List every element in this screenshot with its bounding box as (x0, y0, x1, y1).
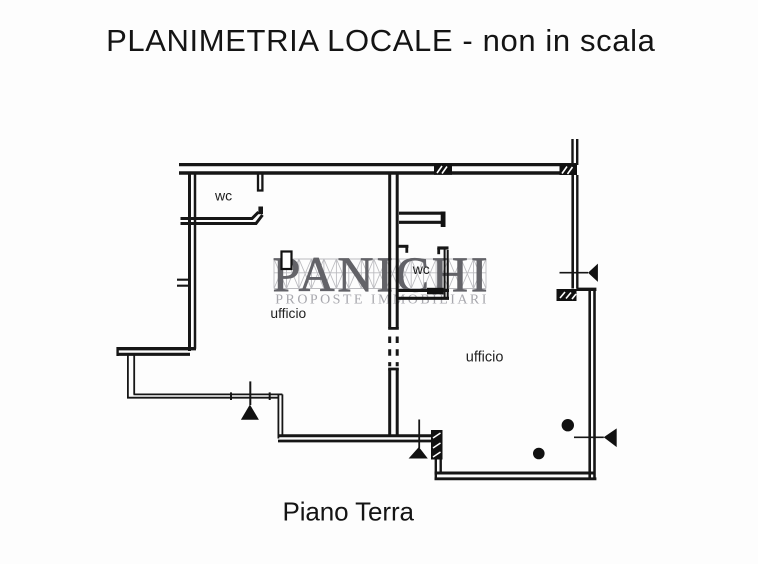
svg-text:wc: wc (412, 261, 430, 277)
svg-text:PROPOSTE IMMOBILIARI: PROPOSTE IMMOBILIARI (275, 292, 489, 307)
svg-text:PLANIMETRIA LOCALE - non in sc: PLANIMETRIA LOCALE - non in scala (106, 23, 656, 58)
svg-text:ufficio: ufficio (466, 349, 504, 365)
svg-text:Piano Terra: Piano Terra (283, 497, 415, 527)
svg-text:wc: wc (214, 187, 232, 203)
svg-text:ufficio: ufficio (270, 306, 306, 321)
